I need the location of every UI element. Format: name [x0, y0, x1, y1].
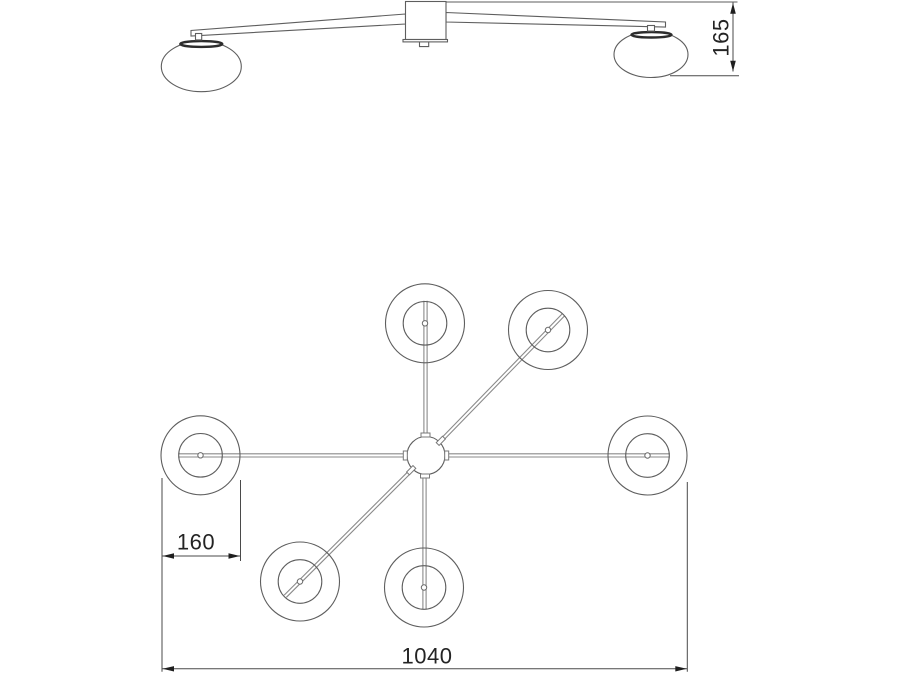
plan-lamp-right [608, 416, 687, 495]
arrow-left-1040 [163, 666, 175, 671]
canopy-box [406, 2, 447, 40]
arrow-right-1040 [675, 666, 687, 671]
canopy-base-plate [403, 40, 448, 42]
plan-lamp-bottom-left [261, 542, 340, 621]
hub-tab-bottom [421, 474, 430, 478]
right-shade-rim [632, 32, 672, 37]
plan-lamp-bottom [385, 548, 464, 627]
side-view: 165 [161, 2, 739, 92]
left-arm-bar [191, 14, 406, 36]
left-shade-rim [180, 41, 222, 47]
shade-dimension: 160 [162, 478, 241, 672]
left-shade-connector [196, 34, 202, 40]
canopy-tab [420, 42, 429, 47]
hub-tab-downleft [407, 466, 416, 475]
arrow-down [730, 61, 736, 72]
plan-lamp-top [386, 284, 465, 363]
overall-width-dimension-label: 1040 [402, 644, 453, 669]
left-shade-body [161, 41, 241, 91]
hub-tab-top [421, 433, 430, 437]
side-right-shade [614, 26, 688, 78]
hub-tab-upright [436, 436, 445, 445]
lamp-drawing-svg: 165 [0, 0, 900, 675]
arrow-right-160 [229, 553, 241, 558]
side-left-shade [161, 34, 241, 92]
shade-dimension-label: 160 [177, 530, 215, 555]
plan-lamp-left [161, 416, 240, 495]
arrow-left-160 [163, 553, 175, 558]
hub-tab-left [403, 451, 407, 460]
plan-view: 160 1040 [161, 284, 687, 672]
right-arm-bar [446, 13, 666, 28]
right-shade-connector [648, 26, 655, 32]
arrow-up [730, 3, 736, 14]
technical-drawing-canvas: 165 [0, 0, 900, 675]
hub-tab-right [445, 451, 449, 460]
height-dimension-label: 165 [709, 18, 734, 56]
plan-lamp-top-right [509, 291, 588, 370]
hub [403, 433, 448, 478]
